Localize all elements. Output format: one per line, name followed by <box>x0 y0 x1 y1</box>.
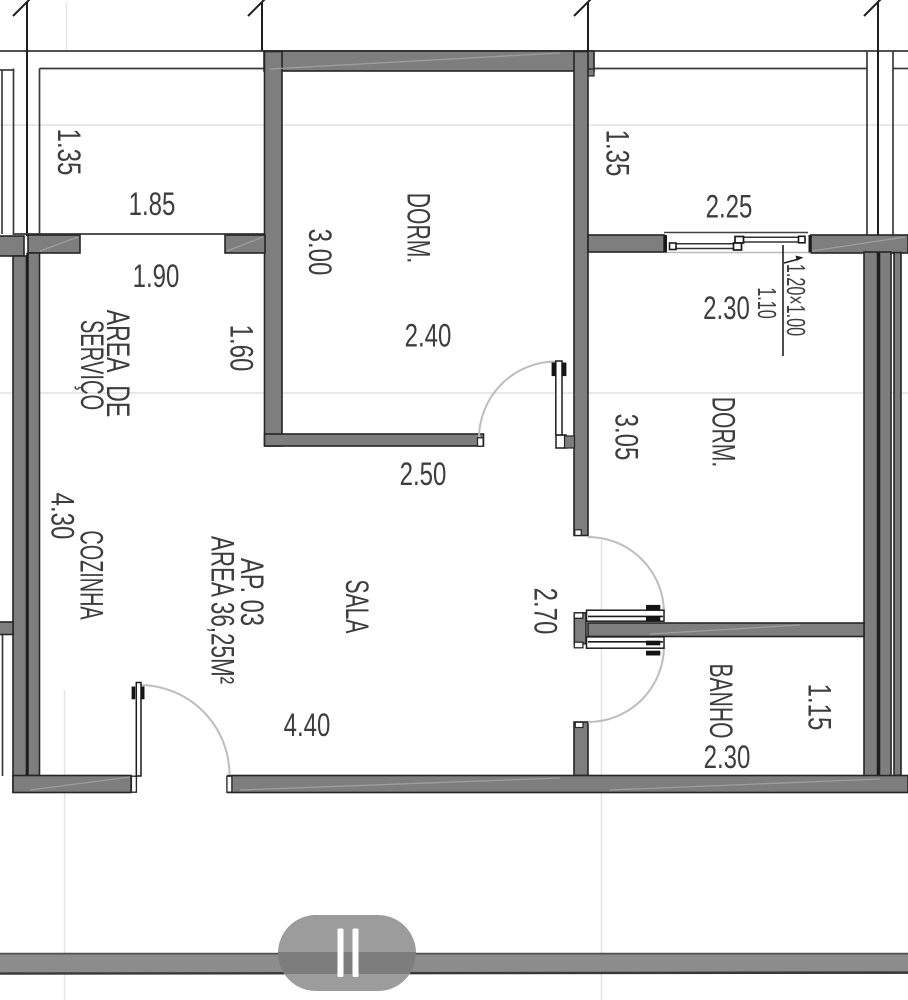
svg-text:1.60: 1.60 <box>224 325 260 372</box>
svg-text:4.40: 4.40 <box>284 707 331 743</box>
svg-text:DORM.: DORM. <box>705 397 742 467</box>
svg-text:DORM.: DORM. <box>400 193 437 263</box>
svg-text:2.30: 2.30 <box>704 739 751 775</box>
svg-text:1.85: 1.85 <box>129 186 176 222</box>
svg-text:SALA: SALA <box>339 579 376 634</box>
svg-text:BANHO: BANHO <box>703 663 740 738</box>
svg-text:1.35: 1.35 <box>600 130 636 177</box>
svg-text:AREA 36,25M²: AREA 36,25M² <box>205 536 241 684</box>
svg-text:COZINHA: COZINHA <box>73 530 109 619</box>
svg-text:2.40: 2.40 <box>405 317 452 353</box>
svg-text:3.00: 3.00 <box>302 229 338 276</box>
svg-text:2.70: 2.70 <box>528 588 564 635</box>
svg-text:SERVIÇO: SERVIÇO <box>74 320 110 410</box>
svg-text:1.35: 1.35 <box>51 129 87 176</box>
svg-text:1.15: 1.15 <box>802 684 838 731</box>
svg-text:2.25: 2.25 <box>706 188 753 224</box>
svg-text:1.20×1.00: 1.20×1.00 <box>781 264 811 336</box>
svg-text:2.50: 2.50 <box>400 456 447 492</box>
svg-text:2.30: 2.30 <box>703 290 750 326</box>
svg-text:1.90: 1.90 <box>133 258 180 294</box>
svg-text:3.05: 3.05 <box>609 414 645 461</box>
svg-text:1.10: 1.10 <box>752 287 782 318</box>
